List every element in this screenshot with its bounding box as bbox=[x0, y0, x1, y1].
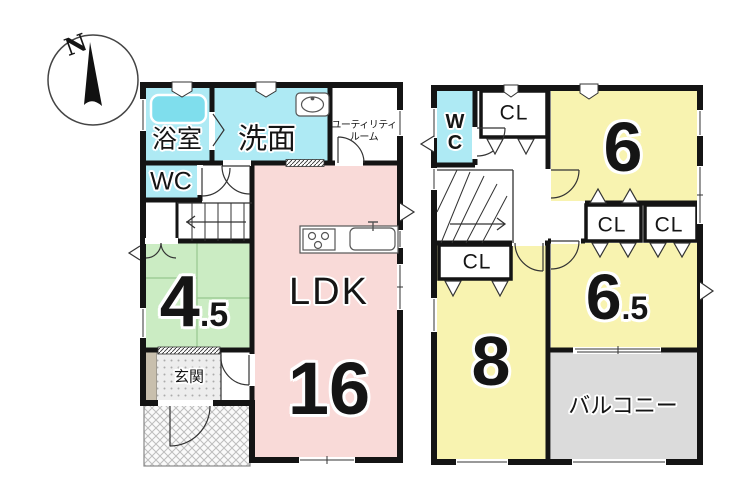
wc-2f-label: W C bbox=[446, 112, 465, 154]
room-6_5-size: 6.5 bbox=[586, 265, 648, 329]
sliding-door-tatami bbox=[158, 347, 220, 354]
washbasin-icon bbox=[296, 93, 329, 116]
utility-room-label: ユーティリティ ルーム bbox=[331, 120, 396, 144]
bathroom-label: 浴室 bbox=[152, 128, 202, 153]
washroom-label: 洗面 bbox=[238, 126, 296, 155]
room-4_5-size: 4.5 bbox=[160, 266, 228, 338]
room-6-size: 6 bbox=[604, 112, 643, 182]
closet-top-label: CL bbox=[500, 103, 529, 124]
ldk-label: LDK bbox=[289, 273, 369, 311]
shoe-cabinet bbox=[145, 352, 157, 401]
sliding-door-washroom-ldk bbox=[286, 160, 324, 167]
balcony-label: バルコニー bbox=[568, 395, 678, 417]
entrance-label: 玄関 bbox=[174, 370, 204, 385]
bathtub-icon bbox=[151, 95, 206, 123]
compass-rose bbox=[48, 35, 138, 125]
room-8-size: 8 bbox=[472, 326, 511, 396]
stairs-2f-icon bbox=[437, 170, 513, 243]
kitchen-counter-icon bbox=[300, 222, 398, 253]
closet-b-label: CL bbox=[655, 215, 684, 236]
stairs-1f-icon bbox=[177, 203, 252, 241]
wc-1f-label: WC bbox=[150, 170, 192, 195]
closet-a-label: CL bbox=[598, 215, 627, 236]
porch-area bbox=[144, 403, 250, 466]
ldk-size: 16 bbox=[288, 352, 370, 426]
floorplan-page: N 浴室 洗面 ユーティリティ ルーム WC 4.5 玄関 LDK 16 W C… bbox=[0, 0, 740, 495]
closet-room8-label: CL bbox=[463, 252, 492, 273]
